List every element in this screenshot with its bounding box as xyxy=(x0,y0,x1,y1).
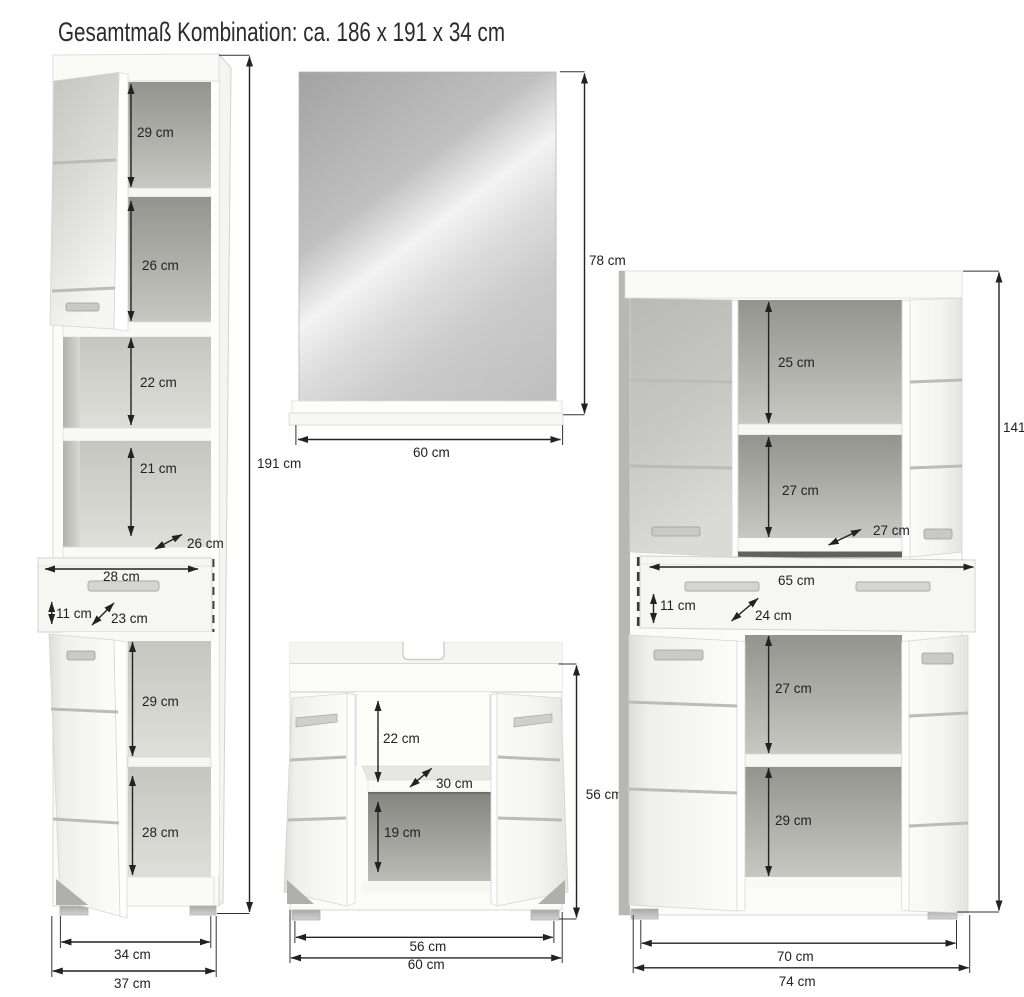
svg-text:19 cm: 19 cm xyxy=(384,825,421,840)
svg-text:26 cm: 26 cm xyxy=(187,536,224,551)
svg-text:27 cm: 27 cm xyxy=(873,523,910,538)
svg-text:141 cm: 141 cm xyxy=(1003,420,1024,435)
svg-text:27 cm: 27 cm xyxy=(782,483,819,498)
svg-text:56 cm: 56 cm xyxy=(586,787,623,802)
svg-text:29 cm: 29 cm xyxy=(142,694,179,709)
svg-text:22 cm: 22 cm xyxy=(140,375,177,390)
svg-text:70 cm: 70 cm xyxy=(777,949,814,964)
svg-text:27 cm: 27 cm xyxy=(775,681,812,696)
svg-text:56 cm: 56 cm xyxy=(410,939,447,954)
svg-text:22 cm: 22 cm xyxy=(383,731,420,746)
svg-text:30 cm: 30 cm xyxy=(436,776,473,791)
svg-text:78 cm: 78 cm xyxy=(589,253,626,268)
svg-text:23 cm: 23 cm xyxy=(111,611,148,626)
svg-text:24 cm: 24 cm xyxy=(755,608,792,623)
svg-text:60 cm: 60 cm xyxy=(413,445,450,460)
svg-text:34 cm: 34 cm xyxy=(114,947,151,962)
svg-text:29 cm: 29 cm xyxy=(775,813,812,828)
svg-text:11 cm: 11 cm xyxy=(56,606,92,621)
svg-text:60 cm: 60 cm xyxy=(408,957,445,972)
svg-text:21 cm: 21 cm xyxy=(140,461,177,476)
svg-text:65 cm: 65 cm xyxy=(778,573,815,588)
svg-text:25 cm: 25 cm xyxy=(778,355,815,370)
svg-text:74 cm: 74 cm xyxy=(779,974,816,989)
svg-text:28 cm: 28 cm xyxy=(103,569,140,584)
svg-text:11 cm: 11 cm xyxy=(660,598,696,613)
svg-text:191 cm: 191 cm xyxy=(257,456,301,471)
svg-text:26 cm: 26 cm xyxy=(142,258,179,273)
svg-text:28 cm: 28 cm xyxy=(142,825,179,840)
svg-text:Gesamtmaß Kombination: ca. 186: Gesamtmaß Kombination: ca. 186 x 191 x 3… xyxy=(58,17,505,47)
svg-text:37 cm: 37 cm xyxy=(114,976,151,991)
svg-text:29 cm: 29 cm xyxy=(137,125,174,140)
